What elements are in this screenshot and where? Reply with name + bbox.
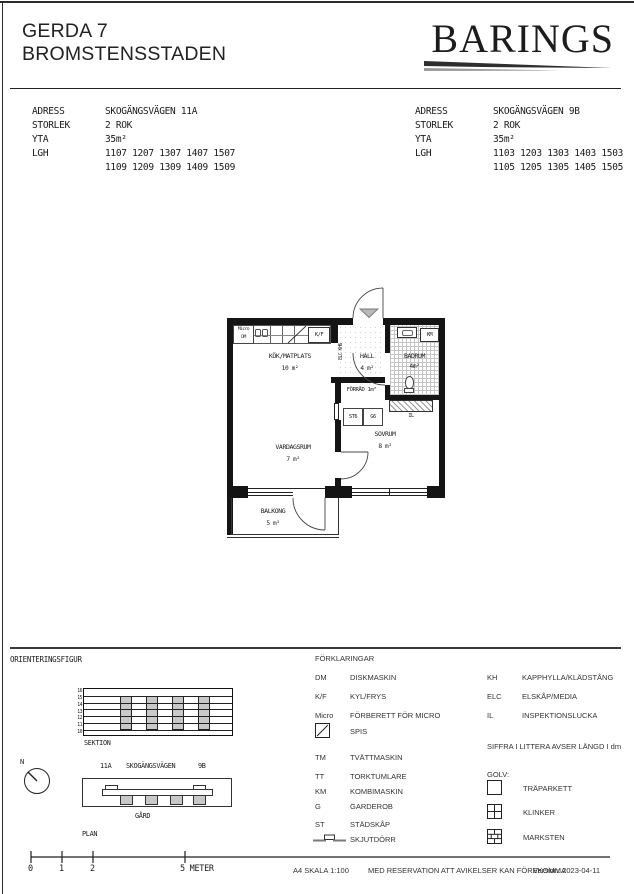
unit-lgh-row1: 1103 1203 1303 1403 1503 — [493, 148, 623, 159]
legend-code: IL — [487, 711, 522, 720]
legend-item: STSTÄDSKÅP — [315, 820, 390, 829]
legend-code: ST — [315, 820, 350, 829]
field-label-address: ADRESS — [32, 105, 105, 119]
room-name: FÖRRÅD — [347, 387, 365, 393]
unit-row: ADRESSSKOGÄNGSVÄGEN 11A — [32, 105, 235, 119]
highlighted-unit — [170, 795, 183, 805]
room-label-bathroom: BADRUM 4m² — [390, 352, 439, 370]
room-name: KÖK/MATPLATS — [240, 352, 340, 360]
room-label-livingroom: VARDAGSRUM 7 m² — [253, 443, 333, 463]
legend-desc: ELSKÅP/MEDIA — [522, 692, 577, 701]
yard-label: GÅRD — [135, 812, 150, 820]
room-area: 8 m² — [355, 443, 415, 450]
stove-icon — [288, 326, 306, 343]
legend: FÖRKLARINGAR DMDISKMASKIN K/FKYL/FRYS Mi… — [313, 648, 631, 858]
unit-size: 2 ROK — [493, 120, 520, 131]
legend-desc: GARDEROB — [350, 802, 393, 811]
highlighted-stack — [120, 696, 132, 730]
unit-row: LGH1107 1207 1307 1407 1507 — [32, 147, 235, 161]
floor-number: 11 — [72, 723, 82, 728]
unit-row: YTA35m² — [32, 133, 235, 147]
floor-plan: Micro DM K/F ELC KH6 KM ST6 G6 — [227, 286, 445, 546]
field-label-area: YTA — [415, 133, 493, 147]
version-text: Version: 2023-04-11 — [533, 866, 600, 875]
legend-code: TM — [315, 753, 350, 762]
unit-size: 2 ROK — [105, 120, 132, 131]
header-rule — [10, 88, 621, 89]
il-label: IL — [389, 413, 433, 419]
highlighted-unit — [120, 795, 133, 805]
unit-lgh-row1: 1107 1207 1307 1407 1507 — [105, 148, 235, 159]
legend-desc: KOMBIMASKIN — [350, 787, 403, 796]
unit-row: 1105 1205 1305 1405 1505 — [415, 161, 623, 175]
room-area: 4m² — [390, 363, 439, 370]
scale-tick-0: 0 — [28, 864, 33, 874]
unit-block-right: ADRESSSKOGÄNGSVÄGEN 9B STORLEK2 ROK YTA3… — [415, 105, 623, 175]
sliding-door-legend-icon — [313, 834, 346, 843]
legend-item: SKJUTDÖRR — [315, 835, 396, 844]
floor-number: 12 — [72, 716, 82, 721]
scale-bar — [25, 847, 615, 865]
legend-item: SPIS — [315, 727, 367, 736]
legend-title: FÖRKLARINGAR — [315, 654, 374, 663]
section-label: SEKTION — [84, 739, 111, 747]
legend-code: KM — [315, 787, 350, 796]
unit-row: STORLEK2 ROK — [32, 119, 235, 133]
unit-row: LGH1103 1203 1303 1403 1503 — [415, 147, 623, 161]
brand-swoosh-icon — [422, 60, 614, 73]
room-label-hall: HALL 4 m² — [347, 352, 387, 372]
legend-desc: KYL/FRYS — [350, 692, 386, 701]
street-label: SKOGÄNGSVÄGEN — [126, 762, 175, 770]
legend-desc: TORKTUMLARE — [350, 772, 407, 781]
legend-item: ELCELSKÅP/MEDIA — [487, 692, 577, 701]
legend-note: SIFFRA I LITTERA AVSER LÄNGD I dm — [487, 742, 621, 751]
floor-type: TRÄPARKETT — [523, 784, 572, 793]
parquet-floor-icon — [487, 780, 502, 795]
legend-code: ELC — [487, 692, 522, 701]
project-area: BROMSTENSSTADEN — [22, 43, 226, 66]
room-name: SOVRUM — [355, 430, 415, 438]
legend-desc: FÖRBERETT FÖR MICRO — [350, 711, 440, 720]
highlighted-unit — [145, 795, 158, 805]
entrance-right-label: 9B — [198, 762, 206, 770]
floor-number: 13 — [72, 710, 82, 715]
highlighted-unit — [193, 795, 206, 805]
legend-code: G — [315, 802, 350, 811]
legend-item: K/FKYL/FRYS — [315, 692, 386, 701]
bedroom-door-arc — [341, 452, 368, 479]
legend-desc: TVÄTTMASKIN — [350, 753, 403, 762]
room-name: BADRUM — [390, 352, 439, 360]
legend-desc: SPIS — [350, 727, 367, 736]
unit-lgh-row2: 1109 1209 1309 1409 1509 — [105, 162, 235, 173]
field-label-size: STORLEK — [32, 119, 105, 133]
highlighted-stack — [198, 696, 210, 730]
highlighted-stack — [146, 696, 158, 730]
brand-wordmark: BARINGS — [418, 18, 614, 60]
floor-number: 15 — [72, 696, 82, 701]
unit-row: STORLEK2 ROK — [415, 119, 623, 133]
field-label-lgh: LGH — [32, 147, 105, 161]
room-area: 5 m² — [243, 520, 303, 527]
page-border-top — [0, 1, 634, 3]
section-figure: 16 15 14 13 12 11 10 SEKTION — [83, 688, 233, 736]
legend-item: MicroFÖRBERETT FÖR MICRO — [315, 711, 440, 720]
room-area: 7 m² — [253, 456, 333, 463]
room-area: 1m² — [367, 387, 376, 393]
room-area: 10 m² — [240, 365, 340, 372]
legend-item: DMDISKMASKIN — [315, 673, 396, 682]
floor-number: 14 — [72, 703, 82, 708]
clinker-floor-icon — [487, 804, 502, 819]
legend-item: TMTVÄTTMASKIN — [315, 753, 403, 762]
building-notch-left — [105, 785, 118, 790]
unit-row: YTA35m² — [415, 133, 623, 147]
scale-tick-2: 2 — [90, 864, 95, 874]
field-label-address: ADRESS — [415, 105, 493, 119]
floor-number: 16 — [72, 689, 82, 694]
project-name: GERDA 7 — [22, 20, 226, 43]
legend-item: TTTORKTUMLARE — [315, 772, 407, 781]
scale-tick-1: 1 — [59, 864, 64, 874]
field-label-area: YTA — [32, 133, 105, 147]
unit-address: SKOGÄNGSVÄGEN 11A — [105, 106, 197, 117]
plan-label: PLAN — [82, 830, 97, 838]
floor-legend-title: GOLV: — [487, 770, 509, 779]
floor-type: KLINKER — [523, 808, 555, 817]
highlighted-stack — [172, 696, 184, 730]
floor-number: 10 — [72, 730, 82, 735]
field-label-lgh: LGH — [415, 147, 493, 161]
legend-code: TT — [315, 772, 350, 781]
legend-item: ILINSPEKTIONSLUCKA — [487, 711, 597, 720]
drawing-sheet: GERDA 7 BROMSTENSSTADEN BARINGS ADRESSSK… — [0, 0, 634, 894]
legend-code: Micro — [315, 711, 350, 720]
floor-type: MARKSTEN — [523, 833, 565, 842]
page-title: GERDA 7 BROMSTENSSTADEN — [22, 20, 226, 65]
site-plan-figure: 11A SKOGÄNGSVÄGEN 9B GÅRD PLAN — [82, 760, 232, 845]
page-border-left — [2, 1, 3, 894]
north-arrow: N — [18, 758, 58, 798]
unit-block-left: ADRESSSKOGÄNGSVÄGEN 11A STORLEK2 ROK YTA… — [32, 105, 235, 175]
legend-desc: KAPPHYLLA/KLÄDSTÅNG — [522, 673, 613, 682]
unit-row: 1109 1209 1309 1409 1509 — [32, 161, 235, 175]
legend-desc: STÄDSKÅP — [350, 820, 390, 829]
legend-code: KH — [487, 673, 522, 682]
legend-item: KMKOMBIMASKIN — [315, 787, 403, 796]
unit-area: 35m² — [493, 134, 515, 145]
room-label-kitchen: KÖK/MATPLATS 10 m² — [240, 352, 340, 372]
legend-desc: DISKMASKIN — [350, 673, 396, 682]
room-name: VARDAGSRUM — [253, 443, 333, 451]
unit-area: 35m² — [105, 134, 127, 145]
north-label: N — [20, 758, 24, 766]
stove-legend-icon — [315, 723, 330, 738]
unit-lgh-row2: 1105 1205 1305 1405 1505 — [493, 162, 623, 173]
scale-end-label: 5 METER — [180, 864, 214, 874]
legend-item: GGARDEROB — [315, 802, 393, 811]
brand-logo: BARINGS — [418, 18, 614, 73]
unit-address: SKOGÄNGSVÄGEN 9B — [493, 106, 580, 117]
room-label-bedroom: SOVRUM 8 m² — [355, 430, 415, 450]
room-area: 4 m² — [347, 365, 387, 372]
entrance-left-label: 11A — [100, 762, 111, 770]
room-name: BALKONG — [243, 507, 303, 515]
legend-code: DM — [315, 673, 350, 682]
building-notch-right — [193, 785, 206, 790]
unit-row: ADRESSSKOGÄNGSVÄGEN 9B — [415, 105, 623, 119]
legend-item: KHKAPPHYLLA/KLÄDSTÅNG — [487, 673, 613, 682]
entry-marker-icon — [360, 309, 378, 318]
paving-floor-icon — [487, 829, 502, 844]
scale-text: A4 SKALA 1:100 — [293, 866, 349, 875]
room-label-balcony: BALKONG 5 m² — [243, 507, 303, 527]
room-name: HALL — [347, 352, 387, 360]
orientation-title: ORIENTERINGSFIGUR — [10, 655, 82, 664]
field-label-size: STORLEK — [415, 119, 493, 133]
legend-desc: INSPEKTIONSLUCKA — [522, 711, 597, 720]
legend-desc: SKJUTDÖRR — [350, 835, 396, 844]
room-label-storage: FÖRRÅD 1m² — [338, 387, 385, 393]
legend-code: K/F — [315, 692, 350, 701]
